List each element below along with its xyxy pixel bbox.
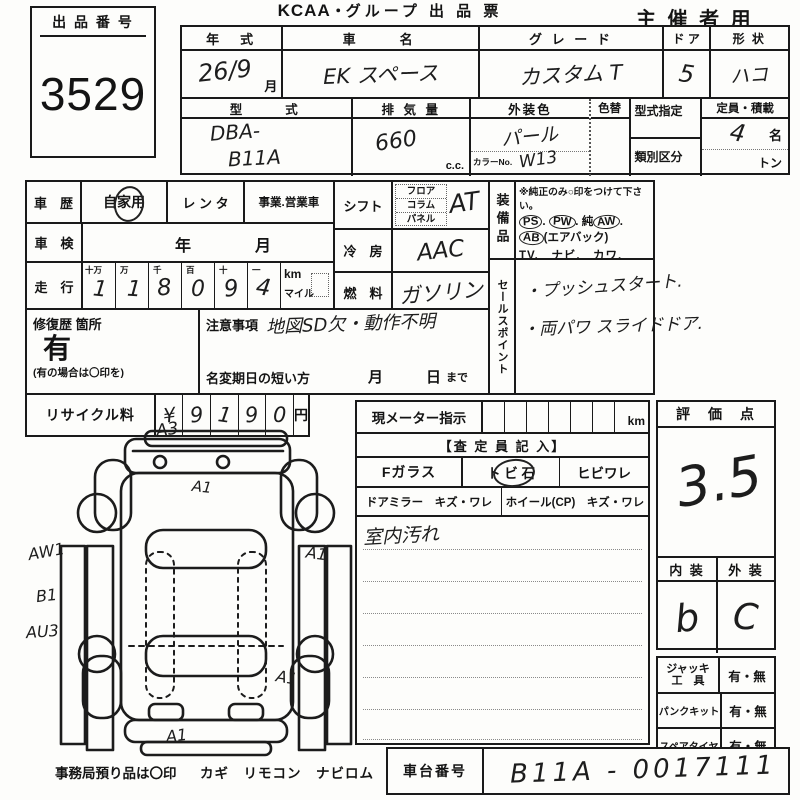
history-table: 車 歴 自家用 レ ン タ 事業.営業車 車 検 年 月 走 行 十万 1 万 … <box>25 180 335 310</box>
sheet-title: KCAA・グループ 出 品 票 <box>235 0 545 21</box>
lot-number-box: 出 品 番 号 3529 <box>30 6 156 158</box>
mileage-label: 走 行 <box>27 263 83 309</box>
exterior-grade-value: C <box>732 596 760 639</box>
auction-sheet: { "header": { "lot_label": "出 品 番 号", "l… <box>0 0 800 800</box>
type-designation-label: 型式指定 <box>635 102 683 119</box>
inspection-label: 車 検 <box>27 224 83 261</box>
meter-digit-cell <box>593 402 615 432</box>
spec-table: 年 式 26/9 月 車 名 EK スペース グ レ ー ド カスタム T ド … <box>180 25 790 175</box>
current-meter-label: 現メーター指示 <box>357 402 483 432</box>
title-dot: ・ <box>331 3 346 20</box>
km-unit-label: km <box>284 267 301 281</box>
color-no-value: W13 <box>518 147 559 172</box>
model-value-line2: B11A <box>227 145 281 172</box>
mileage-digit-cell: 千 8 <box>149 263 182 309</box>
front-glass-label: Fガラス <box>357 458 463 486</box>
mileage-digit-cell: 百 0 <box>182 263 215 309</box>
damage-mark-rear: A1 <box>165 725 188 746</box>
color-change-empty <box>591 119 629 174</box>
mileage-digit-cell: 一 4 <box>248 263 281 309</box>
mileage-digit: 4 <box>254 274 272 302</box>
deadline-made-char: まで <box>446 369 468 385</box>
exterior-color-value: パール <box>500 119 560 152</box>
assessor-table: 現メーター指示 km 【査 定 員 記 入】 Fガラス ト ビ 石 ヒビワレ ド… <box>355 400 650 745</box>
damage-mark-left-2: B1 <box>35 585 58 606</box>
cautions-label: 注意事項 <box>206 315 258 334</box>
assessor-notes-area: 室内汚れ <box>357 517 648 748</box>
ton-label: トン <box>758 154 782 171</box>
interior-header: 内 装 <box>658 558 718 580</box>
jack-tools-label-2: 工 具 <box>672 675 705 687</box>
shift-table: シフト フロア コラム パネル AT 冷 房 AAC 燃 料 ガソリン <box>333 180 490 310</box>
brand-logo: KCAA <box>278 1 331 20</box>
chassis-number-label: 車台番号 <box>388 749 484 793</box>
tools-box: ジャッキ 工 具 有・無 パンクキット 有・無 スペアタイヤ 有・無 <box>656 656 776 760</box>
wheel-label: ホイール(CP) キズ・ワレ <box>502 488 648 515</box>
name-change-deadline-label: 名変期日の短い方 <box>206 368 310 387</box>
cooling-value: AAC <box>416 235 466 266</box>
jack-tools-label-1: ジャッキ <box>666 663 709 675</box>
color-change-header: 色替 <box>591 99 629 119</box>
meter-digit-cell <box>483 402 505 432</box>
grade-value: カスタム T <box>518 56 623 91</box>
equip-aw-prefix: 純 <box>582 216 594 228</box>
meter-digit-cell <box>505 402 527 432</box>
history-rental: レ ン タ <box>168 182 245 222</box>
car-diagram <box>45 418 355 763</box>
assessor-note-handwriting: 室内汚れ <box>362 519 439 550</box>
equipment-label: 装備品 <box>490 182 516 258</box>
digit-place-label: 十 <box>219 264 228 276</box>
damage-mark-right-2: A1 <box>275 666 299 688</box>
repair-history-value: 有 <box>43 335 198 363</box>
inspection-year-char: 年 <box>175 232 191 256</box>
model-header: 型 式 <box>182 99 351 119</box>
lot-number-label: 出 品 番 号 <box>40 12 146 37</box>
chassis-number-value: B11A - 0017111 <box>510 750 777 789</box>
office-items-list: カギ リモコン ナビロム <box>200 762 374 782</box>
private-circle-mark <box>111 184 147 225</box>
displacement-header: 排 気 量 <box>353 99 469 119</box>
meter-digit-cell <box>571 402 593 432</box>
office-items-note: 事務局預り品は〇印 <box>55 762 177 782</box>
mileage-digit: 8 <box>156 274 173 301</box>
sales-point-1: ・プッシュスタート. <box>523 267 683 303</box>
month-suffix: 月 <box>264 76 277 95</box>
unit-checkbox <box>311 273 329 297</box>
shape-value: ハコ <box>729 59 769 89</box>
puncture-kit-value: 有・無 <box>722 694 774 727</box>
digit-place-label: 十万 <box>85 264 102 276</box>
deadline-day-char: 日 <box>426 366 441 387</box>
sep: . <box>542 216 545 228</box>
equipment-note: ※純正のみ○印をつけて下さい。 <box>519 184 650 212</box>
shift-option-column: コラム <box>396 199 446 213</box>
damage-mark-left-3: AU3 <box>25 621 59 642</box>
door-mirror-label: ドアミラー キズ・ワレ <box>357 488 502 515</box>
displacement-value: 660 <box>374 126 419 157</box>
shift-label: シフト <box>335 182 393 228</box>
score-box: 評 価 点 3.5 内 装 外 装 b C <box>656 400 776 650</box>
model-value-line1: DBA- <box>209 118 261 145</box>
damage-mark-hood: A1 <box>191 477 213 497</box>
cc-unit: c.c. <box>446 160 464 172</box>
meter-digit-cell <box>527 402 549 432</box>
damage-mark-right-1: A1 <box>305 543 329 565</box>
mileage-digit: 1 <box>126 277 142 303</box>
mileage-digit-cell: 十 9 <box>215 263 248 309</box>
repair-history-note: (有の場合は〇印を) <box>33 365 198 380</box>
equip-aw: AW <box>593 214 620 230</box>
shape-header: 形 状 <box>711 27 788 51</box>
door-value: 5 <box>677 59 696 89</box>
lot-number-value: 3529 <box>32 67 154 121</box>
fuel-value: ガソリン <box>397 273 483 310</box>
shift-options: フロア コラム パネル <box>395 184 447 226</box>
jack-tools-value: 有・無 <box>720 658 774 692</box>
door-header: ド ア <box>664 27 709 51</box>
stone-chip-label: ト ビ 石 <box>463 458 560 486</box>
sales-point-2: ・両パワ スライドドア. <box>522 309 704 340</box>
sales-points-box: セールスポイント ・プッシュスタート. ・両パワ スライドドア. <box>488 258 655 395</box>
damage-mark-front: A3 <box>155 419 180 442</box>
shift-value: AT <box>447 186 481 219</box>
capacity-unit: 名 <box>769 125 782 144</box>
exterior-header: 外 装 <box>718 558 774 580</box>
grade-header: グ レ ー ド <box>480 27 662 51</box>
equip-pw: PW <box>548 214 575 229</box>
inspection-month-char: 月 <box>255 232 271 256</box>
exterior-color-header: 外装色 <box>471 99 589 119</box>
mile-unit-label: マイル <box>284 285 314 300</box>
year-header: 年 式 <box>182 27 281 51</box>
name-header: 車 名 <box>283 27 478 51</box>
sheet-title-text: グループ 出 品 票 <box>346 3 503 20</box>
equip-ps: PS <box>519 214 543 229</box>
interior-grade-value: b <box>673 594 702 640</box>
sep: . <box>575 216 578 228</box>
meter-digit-cell <box>549 402 571 432</box>
fuel-label: 燃 料 <box>335 273 393 311</box>
cautions-value: 地図SD欠・動作不明 <box>266 307 436 339</box>
capacity-value: 4 <box>728 118 748 148</box>
equipment-box: 装備品 ※純正のみ○印をつけて下さい。 PS. PW. 純AW. AB(エアバッ… <box>488 180 655 260</box>
mileage-digit: 9 <box>223 275 240 302</box>
meter-km-unit: km <box>628 414 645 428</box>
repair-history-label: 修復歴 箇所 <box>33 314 198 333</box>
shift-option-panel: パネル <box>396 213 446 226</box>
sep: . <box>620 216 623 228</box>
chassis-number-box: 車台番号 B11A - 0017111 <box>386 747 790 795</box>
capacity-header: 定員・積載 <box>702 99 788 119</box>
assessor-entry-header: 【査 定 員 記 入】 <box>357 434 648 458</box>
color-no-label: カラーNo. <box>473 156 512 168</box>
digit-place-label: 万 <box>120 264 129 276</box>
equip-ab-suffix: (エアバック) <box>544 232 609 244</box>
mileage-digit-cell: 万 1 <box>116 263 149 309</box>
history-label: 車 歴 <box>27 182 82 222</box>
cautions-box: 注意事項 地図SD欠・動作不明 名変期日の短い方 月 日 まで <box>198 308 490 395</box>
crack-label: ヒビワレ <box>560 458 648 486</box>
digit-place-label: 千 <box>153 264 162 276</box>
shift-option-floor: フロア <box>396 185 446 199</box>
puncture-kit-label: パンクキット <box>658 694 722 727</box>
history-private: 自家用 <box>82 182 168 222</box>
mileage-digit: 0 <box>191 277 205 302</box>
deadline-month-char: 月 <box>368 366 383 387</box>
score-value: 3.5 <box>671 443 767 520</box>
year-value: 26/9 <box>197 54 254 87</box>
equip-ab: AB <box>519 230 545 246</box>
repair-history-box: 修復歴 箇所 有 (有の場合は〇印を) <box>25 308 200 395</box>
mileage-digit-cell: 十万 1 <box>83 263 116 309</box>
mileage-digit: 1 <box>92 276 109 302</box>
equipment-line1: PS. PW. 純AW. AB(エアバック) <box>519 213 650 245</box>
car-name-value: EK スペース <box>323 57 439 91</box>
class-division-label: 類別区分 <box>635 148 683 165</box>
cooling-label: 冷 房 <box>335 230 393 271</box>
digit-place-label: 百 <box>186 264 195 276</box>
sales-points-label: セールスポイント <box>490 260 516 393</box>
score-header: 評 価 点 <box>658 402 774 428</box>
history-business: 事業.営業車 <box>245 182 333 222</box>
